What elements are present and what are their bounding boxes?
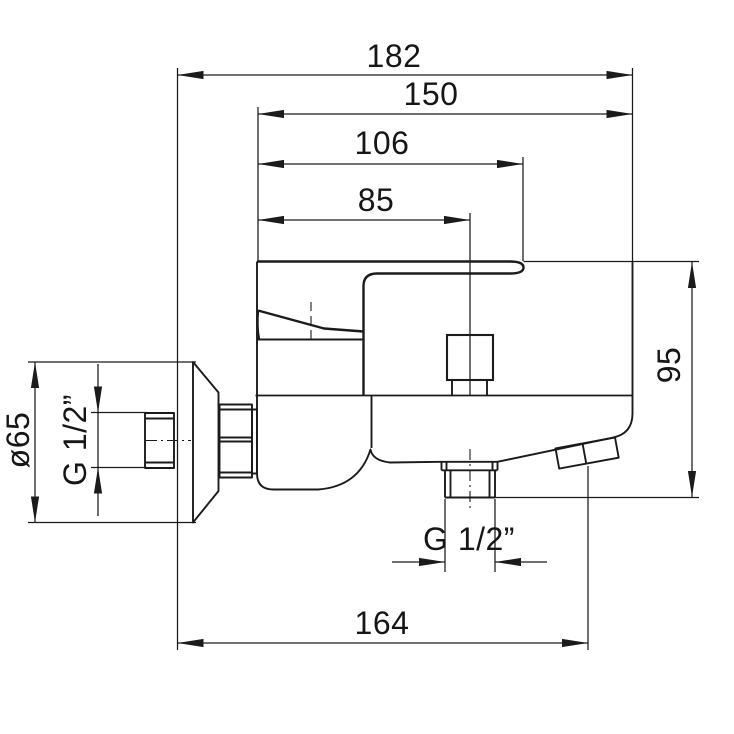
dimension-body-height: 95: [651, 262, 696, 497]
dimension-label-g12-shower: G 1/2”: [423, 521, 515, 557]
arrow-left: [258, 160, 284, 168]
dimension-label-164: 164: [355, 605, 410, 641]
faucet-outline: [145, 262, 633, 523]
body-left-outline: [257, 262, 442, 490]
dimension-total-projection: 182: [178, 38, 633, 79]
dimension-shower-thread: G 1/2”: [392, 521, 547, 566]
arrow-right: [444, 216, 470, 224]
arrow-left: [178, 639, 204, 647]
arrow-bottom: [31, 497, 39, 523]
shower-nipple-flange: [442, 462, 498, 471]
drawing-canvas: 182 150 106 85 95 164 ø65: [0, 0, 734, 734]
dimension-label-dia65: ø65: [0, 412, 36, 469]
dimension-label-85: 85: [358, 182, 395, 218]
spout-outlet-body: [555, 437, 618, 468]
arrow-up: [94, 468, 102, 494]
dimension-escutcheon-diameter: ø65: [0, 362, 39, 523]
arrow-right: [419, 558, 445, 566]
lever-handle-outline: [257, 262, 524, 396]
dimension-label-95: 95: [651, 347, 687, 384]
arrow-right: [607, 71, 633, 79]
arrow-left: [495, 558, 521, 566]
dimension-wall-thread: G 1/2”: [57, 364, 102, 516]
spout-outlet-divider: [583, 443, 587, 463]
dimension-label-106: 106: [355, 125, 410, 161]
dimension-label-g12-wall: G 1/2”: [57, 394, 93, 486]
dimension-label-150: 150: [404, 76, 459, 112]
mounting-nut-facets: [220, 410, 253, 473]
dimension-outlet-offset: 85: [258, 182, 470, 224]
dimension-spout-reach: 164: [178, 605, 589, 647]
arrow-right: [562, 639, 588, 647]
arrow-down: [94, 387, 102, 413]
bath-mixer-dimension-drawing: 182 150 106 85 95 164 ø65: [0, 0, 734, 734]
arrow-right: [607, 110, 633, 118]
arrow-right: [497, 160, 523, 168]
arrow-left: [178, 71, 204, 79]
spout-outlet: [555, 437, 618, 468]
dimension-label-182: 182: [367, 38, 422, 74]
nut-washer: [252, 410, 257, 474]
arrow-top: [31, 362, 39, 388]
arrow-left: [258, 216, 284, 224]
arrow-top: [688, 262, 696, 288]
arrow-left: [258, 110, 284, 118]
dimension-body-projection: 150: [258, 76, 633, 118]
dimension-lever-reach: 106: [258, 125, 523, 168]
wall-escutcheon-flange: [193, 362, 219, 523]
arrow-bottom: [688, 471, 696, 497]
